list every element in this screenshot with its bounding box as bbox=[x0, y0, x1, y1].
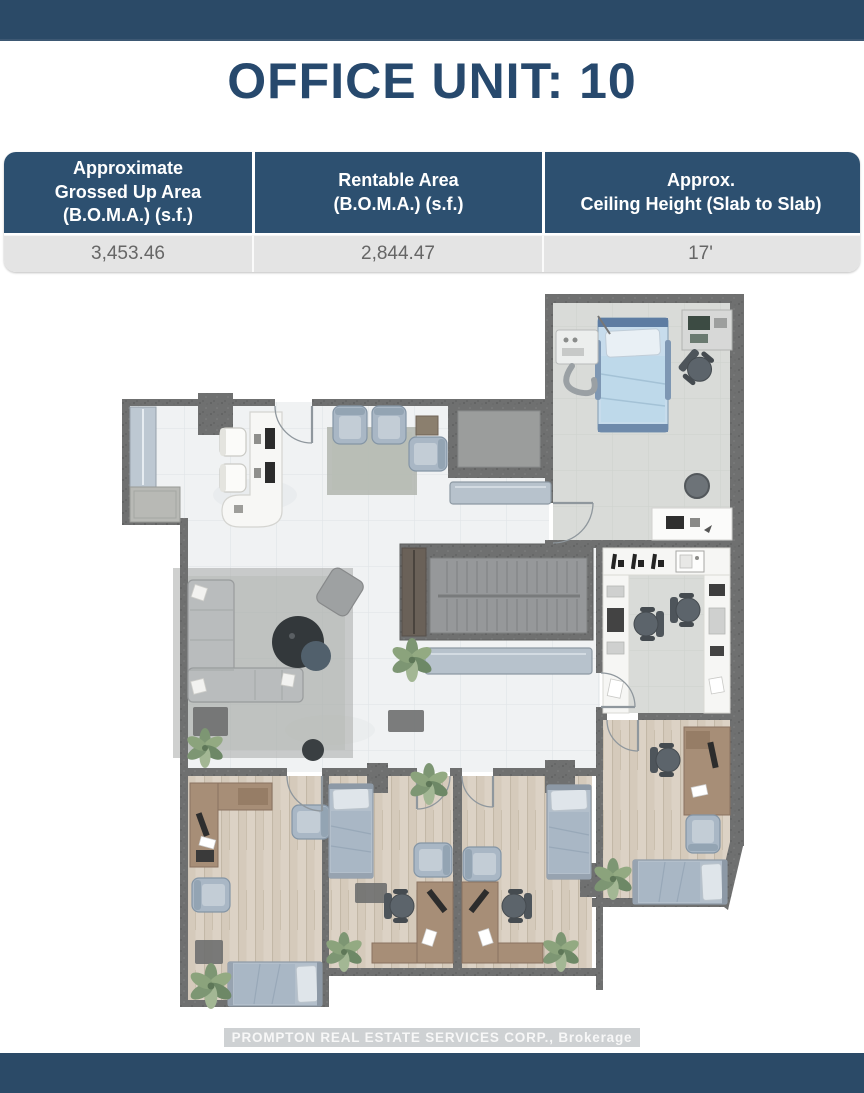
page-title: OFFICE UNIT: 10 bbox=[0, 52, 864, 110]
watermark-row: PROMPTON REAL ESTATE SERVICES CORP., Bro… bbox=[0, 1028, 864, 1047]
rentable-area-value: 2,844.47 bbox=[252, 236, 542, 272]
exam-console-desk bbox=[652, 508, 732, 540]
unit-info-table: Approximate Grossed Up Area (B.O.M.A.) (… bbox=[4, 152, 860, 272]
office4-bed bbox=[633, 860, 727, 904]
office1-bed bbox=[228, 962, 322, 1006]
floor-mat bbox=[193, 707, 228, 736]
bench-seat bbox=[450, 482, 551, 504]
coffee-table-tray bbox=[301, 641, 331, 671]
exam-workstation-desk bbox=[682, 310, 732, 350]
office3-bed bbox=[547, 785, 591, 879]
storage-closet bbox=[448, 400, 551, 478]
side-table bbox=[416, 416, 438, 435]
unit-info-table-value-row: 3,453.46 2,844.47 17' bbox=[4, 235, 860, 272]
floor-mat bbox=[388, 710, 424, 732]
office4-desk bbox=[684, 727, 730, 815]
col-rentable-area-header: Rentable Area (B.O.M.A.) (s.f.) bbox=[252, 152, 542, 233]
office3-armchair bbox=[463, 847, 501, 881]
office2-bed bbox=[329, 784, 373, 878]
office1-armchair bbox=[192, 878, 230, 912]
waiting-armchair bbox=[409, 437, 447, 471]
brochure-page: OFFICE UNIT: 10 Approximate Grossed Up A… bbox=[0, 0, 864, 1093]
bench-seat bbox=[425, 648, 592, 674]
bottom-accent-bar bbox=[0, 1053, 864, 1093]
waiting-armchair bbox=[333, 406, 367, 444]
visitor-chair bbox=[220, 464, 246, 492]
floor-plan-rendering bbox=[0, 290, 864, 1053]
top-accent-bar bbox=[0, 0, 864, 41]
office4-armchair bbox=[686, 815, 720, 853]
waiting-armchair bbox=[372, 406, 406, 444]
stairwell bbox=[400, 544, 593, 640]
grossed-up-area-value: 3,453.46 bbox=[4, 236, 252, 272]
unit-info-table-header-row: Approximate Grossed Up Area (B.O.M.A.) (… bbox=[4, 152, 860, 235]
floor-mat bbox=[355, 883, 387, 903]
visitor-chair bbox=[220, 428, 246, 456]
office2-armchair bbox=[414, 843, 452, 877]
floor-mat bbox=[195, 940, 223, 964]
lab-left-counter bbox=[603, 575, 629, 713]
planter-box bbox=[130, 487, 180, 522]
brokerage-watermark: PROMPTON REAL ESTATE SERVICES CORP., Bro… bbox=[224, 1028, 641, 1047]
col-grossed-up-area-header: Approximate Grossed Up Area (B.O.M.A.) (… bbox=[4, 152, 252, 233]
lab-right-counter bbox=[704, 575, 730, 713]
ottoman bbox=[302, 739, 324, 761]
ceiling-height-value: 17' bbox=[542, 236, 857, 272]
exam-stool bbox=[685, 474, 709, 498]
office1-armchair bbox=[292, 805, 330, 839]
hospital-bed bbox=[595, 318, 671, 432]
col-ceiling-height-header: Approx. Ceiling Height (Slab to Slab) bbox=[542, 152, 857, 233]
sink bbox=[676, 551, 704, 572]
